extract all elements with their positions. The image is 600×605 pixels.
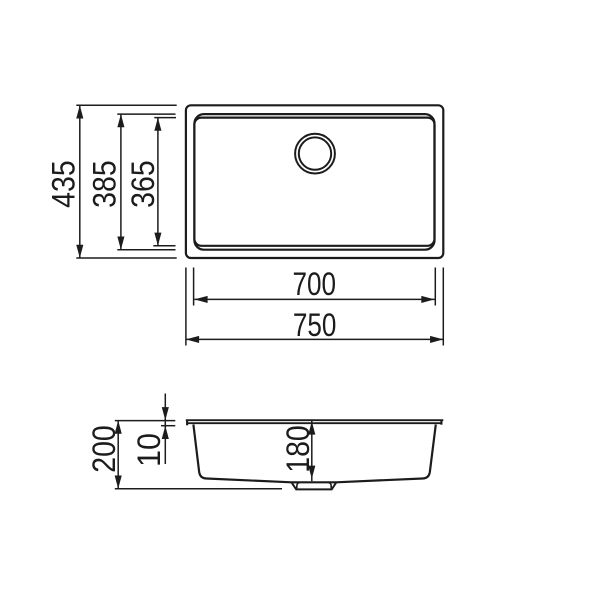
svg-text:435: 435 bbox=[46, 160, 82, 208]
svg-text:10: 10 bbox=[131, 433, 167, 467]
svg-text:700: 700 bbox=[293, 266, 337, 302]
svg-text:180: 180 bbox=[280, 425, 316, 473]
svg-text:365: 365 bbox=[125, 160, 161, 208]
svg-text:200: 200 bbox=[86, 425, 122, 473]
svg-text:385: 385 bbox=[86, 160, 122, 208]
svg-text:750: 750 bbox=[293, 307, 337, 343]
